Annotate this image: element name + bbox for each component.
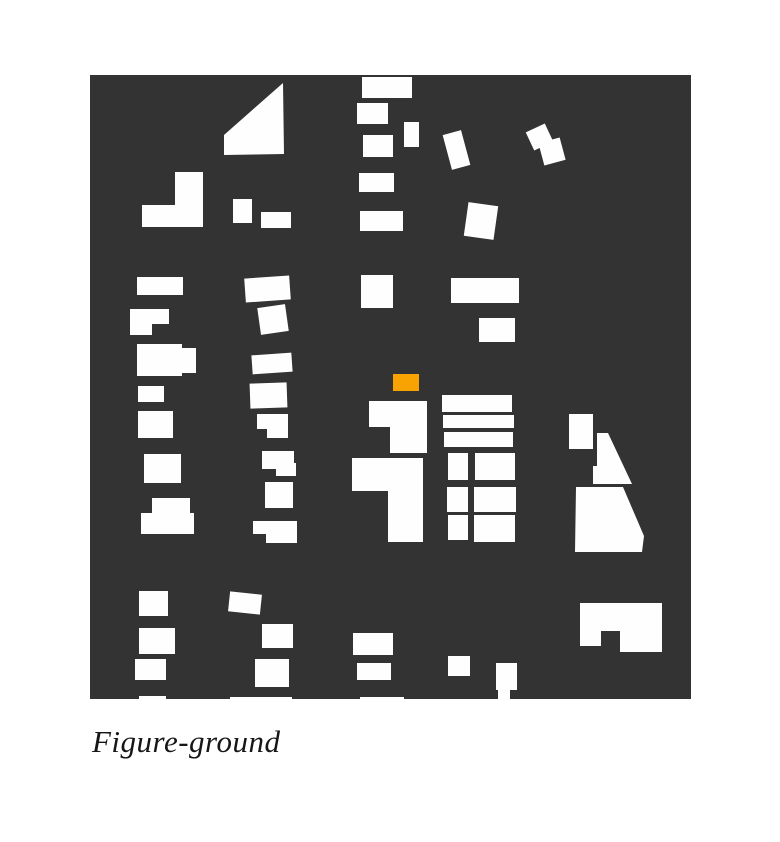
building-footprint xyxy=(569,414,593,449)
building-footprint xyxy=(475,453,515,480)
building-footprint xyxy=(390,401,427,453)
building-footprint xyxy=(141,513,194,534)
building-footprint xyxy=(448,515,468,540)
building-footprint xyxy=(250,382,288,408)
building-footprint xyxy=(137,344,182,376)
building-footprint xyxy=(233,199,252,223)
building-footprint xyxy=(357,103,388,124)
building-footprint xyxy=(261,212,291,228)
building-footprint xyxy=(479,318,515,342)
building-footprint xyxy=(443,415,514,428)
building-footprint xyxy=(228,591,262,614)
building-footprint xyxy=(360,211,403,231)
building-footprint xyxy=(182,348,196,373)
building-footprint xyxy=(448,656,470,676)
building-footprint xyxy=(444,432,513,447)
building-footprint xyxy=(474,487,516,512)
building-footprint xyxy=(388,458,423,542)
building-footprint xyxy=(266,521,297,543)
building-footprint xyxy=(276,463,296,476)
highlighted-building xyxy=(393,374,419,391)
building-footprint xyxy=(138,386,164,402)
building-footprint xyxy=(138,411,173,438)
building-footprint xyxy=(137,277,183,295)
building-footprint xyxy=(359,173,394,192)
building-footprint xyxy=(448,453,468,480)
page: Figure-ground xyxy=(0,0,780,842)
building-footprint xyxy=(251,353,292,375)
building-footprint xyxy=(464,202,498,240)
building-footprint xyxy=(447,487,468,512)
building-footprint xyxy=(139,696,166,699)
building-footprint xyxy=(353,633,393,655)
building-footprint xyxy=(262,624,293,648)
building-footprint xyxy=(255,659,289,687)
figure-ground-svg xyxy=(90,75,691,699)
building-footprint xyxy=(360,697,404,699)
caption: Figure-ground xyxy=(92,724,280,760)
building-footprint xyxy=(451,278,519,303)
building-footprint xyxy=(357,663,391,680)
building-footprint xyxy=(135,659,166,680)
building-footprint xyxy=(267,414,288,438)
building-footprint xyxy=(474,515,515,542)
building-footprint xyxy=(244,275,291,302)
building-footprint xyxy=(139,591,168,616)
building-footprint xyxy=(404,122,419,147)
building-footprint xyxy=(362,77,412,98)
building-footprint xyxy=(265,482,293,508)
building-footprint xyxy=(361,275,393,308)
building-footprint xyxy=(363,135,393,157)
building-footprint xyxy=(442,395,512,412)
building-footprint xyxy=(144,454,181,483)
figure-ground-map xyxy=(90,75,691,699)
building-footprint xyxy=(257,304,288,335)
building-footprint xyxy=(139,628,175,654)
building-footprint xyxy=(142,205,203,227)
building-footprint xyxy=(130,309,152,335)
building-footprint xyxy=(230,697,292,699)
building-footprint xyxy=(496,663,517,690)
building-footprint xyxy=(152,498,190,514)
building-footprint xyxy=(580,603,662,652)
building-footprint xyxy=(498,690,510,699)
